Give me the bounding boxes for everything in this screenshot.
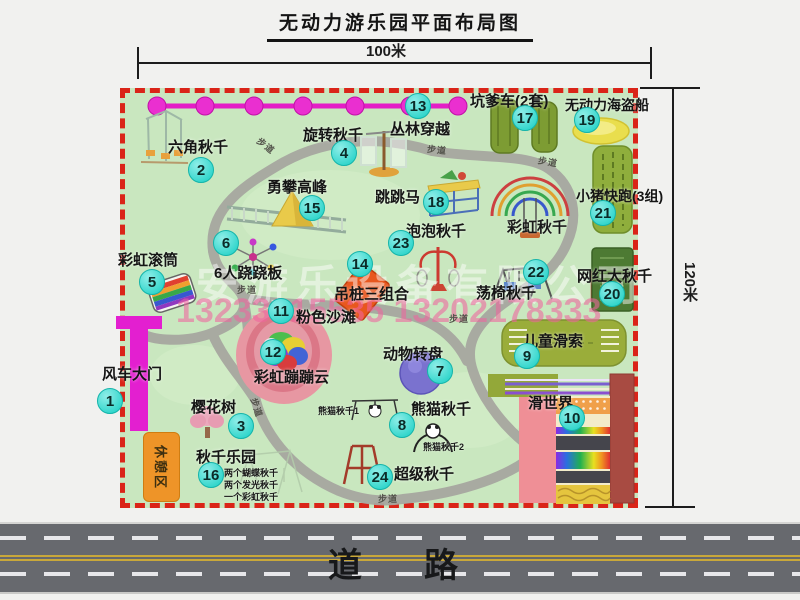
park-layout-page: 无动力游乐园平面布局图 100米 120米 [0, 0, 800, 600]
attraction-badge-9: 9 [514, 343, 540, 369]
attraction-label-24: 超级秋千 [394, 463, 454, 484]
attraction-badge-20: 20 [599, 281, 625, 307]
extra-label: 一个彩虹秋千 [224, 490, 278, 503]
attraction-badge-16: 16 [198, 462, 224, 488]
attraction-badge-21: 21 [590, 200, 616, 226]
attraction-badge-22: 22 [523, 259, 549, 285]
extra-label: 熊猫秋千2 [423, 440, 464, 453]
attraction-badge-14: 14 [347, 251, 373, 277]
trail-label: 步道 [378, 492, 398, 505]
attraction-label-17: 坑爹车(2套) [470, 90, 548, 111]
attraction-label-2: 六角秋千 [168, 136, 228, 157]
extra-label: 彩虹秋千 [507, 216, 567, 237]
page-title-text: 无动力游乐园平面布局图 [267, 8, 533, 42]
attraction-label-14: 吊桩三组合 [334, 283, 409, 304]
extra-label: 熊猫秋千1 [318, 404, 359, 417]
attraction-badge-6: 6 [213, 230, 239, 256]
attraction-badge-1: 1 [97, 388, 123, 414]
attraction-badge-18: 18 [423, 189, 449, 215]
attraction-badge-13: 13 [405, 93, 431, 119]
attraction-label-18: 跳跳马 [375, 186, 420, 207]
attraction-label-4: 旋转秋千 [303, 124, 363, 145]
attraction-badge-8: 8 [389, 412, 415, 438]
road: 道 路 [0, 522, 800, 594]
attraction-badge-23: 23 [388, 230, 414, 256]
dimension-label-height: 120米 [679, 262, 700, 302]
dimension-tick-right-bottom [645, 506, 695, 508]
attraction-badge-17: 17 [512, 105, 538, 131]
road-label: 道 路 [0, 538, 800, 587]
trail-label: 步道 [237, 283, 257, 296]
attraction-badge-19: 19 [574, 107, 600, 133]
dimension-line-top [137, 62, 652, 64]
dimension-line-right [672, 88, 674, 508]
attraction-label-15: 勇攀高峰 [267, 176, 327, 197]
attraction-label-6: 6人跷跷板 [214, 262, 282, 283]
attraction-label-13: 丛林穿越 [390, 118, 450, 139]
attraction-badge-12: 12 [260, 339, 286, 365]
attraction-badge-4: 4 [331, 140, 357, 166]
attraction-label-1: 风车大门 [102, 363, 162, 384]
dimension-tick-right-top [640, 87, 700, 89]
page-title: 无动力游乐园平面布局图 [0, 8, 800, 42]
attraction-label-5: 彩虹滚筒 [118, 249, 178, 270]
rest-area-box: 休憩区 [143, 432, 180, 502]
attraction-label-12: 彩虹蹦蹦云 [254, 366, 329, 387]
attraction-label-3: 樱花树 [191, 396, 236, 417]
attraction-badge-7: 7 [427, 358, 453, 384]
attraction-label-23: 泡泡秋千 [406, 220, 466, 241]
trail-label: 步道 [426, 142, 447, 157]
dimension-tick-top-left [137, 47, 139, 79]
attraction-badge-5: 5 [139, 269, 165, 295]
attraction-badge-24: 24 [367, 464, 393, 490]
trail-label: 步道 [449, 312, 469, 325]
attraction-badge-11: 11 [268, 298, 294, 324]
attraction-badge-15: 15 [299, 195, 325, 221]
attraction-badge-2: 2 [188, 157, 214, 183]
dimension-label-width: 100米 [366, 40, 406, 61]
attraction-label-8: 熊猫秋千 [411, 398, 471, 419]
attraction-label-11: 粉色沙滩 [296, 306, 356, 327]
attraction-label-22: 荡椅秋千 [476, 282, 536, 303]
dimension-tick-top-right [650, 47, 652, 79]
rest-area-label: 休憩区 [152, 444, 171, 489]
attraction-badge-3: 3 [228, 413, 254, 439]
attraction-label-21: 小猪快跑(3组) [576, 186, 663, 206]
attraction-badge-10: 10 [559, 405, 585, 431]
